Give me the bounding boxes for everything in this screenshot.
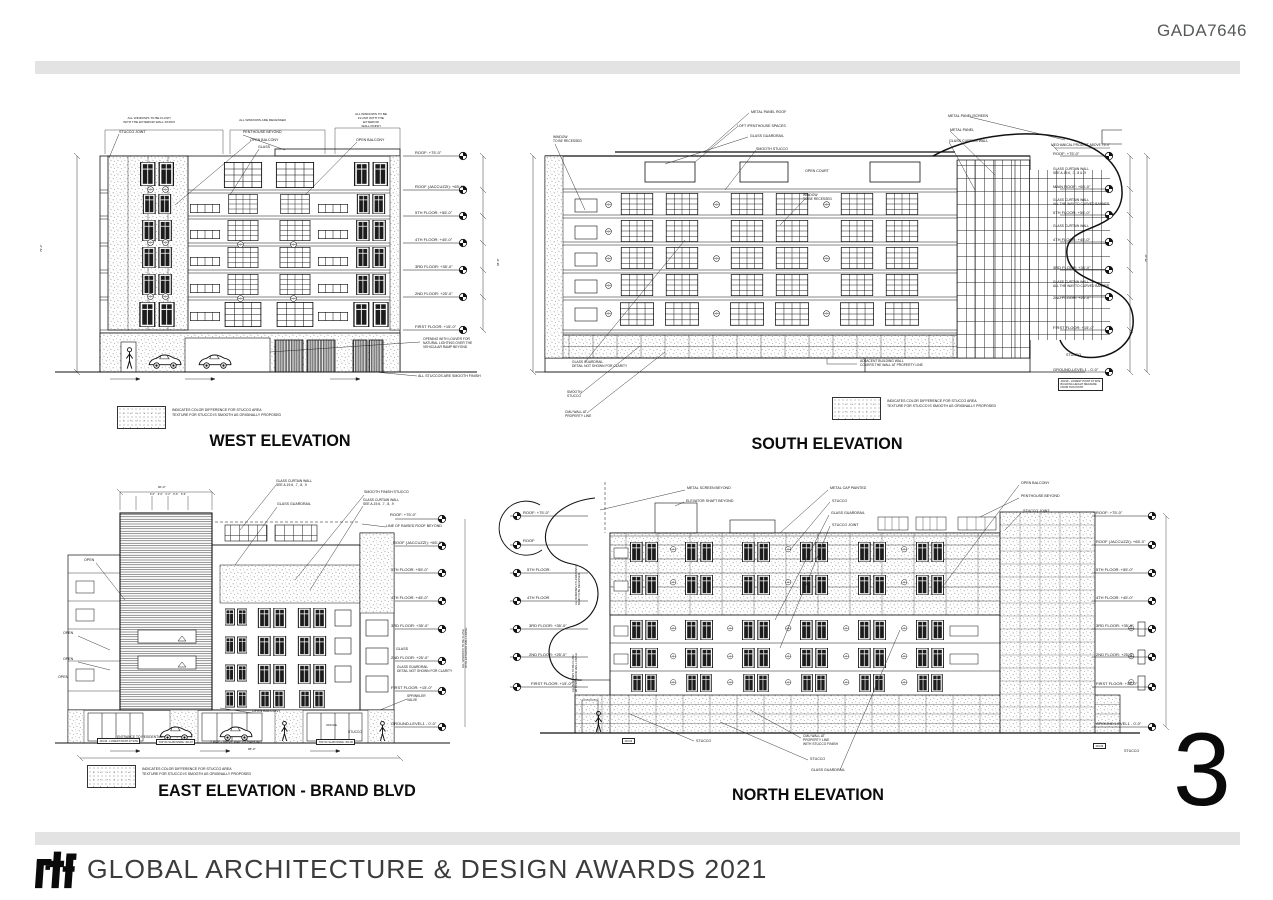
north-curve-loop [499, 501, 542, 555]
south-windows [575, 193, 919, 326]
sheet-number: 3 [1173, 718, 1231, 822]
award-title: GLOBAL ARCHITECTURE & DESIGN AWARDS 2021 [87, 854, 767, 885]
east-elevation-title: EAST ELEVATION - BRAND BLVD [158, 781, 416, 801]
rtf-logo [35, 848, 77, 890]
west-building-linework [55, 149, 477, 372]
south-elevation-drawing [525, 100, 1173, 435]
west-elevation-title: WEST ELEVATION [209, 431, 350, 451]
north-building-linework [540, 482, 1140, 733]
south-elevation-title: SOUTH ELEVATION [751, 434, 902, 454]
east-elevation-drawing [50, 470, 505, 810]
east-level-markers [395, 515, 446, 730]
west-elevation-drawing [35, 100, 525, 435]
north-elevation-drawing [480, 470, 1172, 820]
north-curved-screen [545, 498, 598, 680]
east-building-linework [55, 513, 450, 743]
top-divider-bar [35, 61, 1240, 74]
west-level-markers [403, 152, 467, 333]
north-elevation-title: NORTH ELEVATION [732, 785, 884, 805]
drawing-sheet: GADA7646 [0, 0, 1273, 900]
project-code: GADA7646 [1157, 21, 1247, 41]
bottom-divider-bar [35, 832, 1240, 845]
footer: GLOBAL ARCHITECTURE & DESIGN AWARDS 2021 [35, 848, 754, 890]
